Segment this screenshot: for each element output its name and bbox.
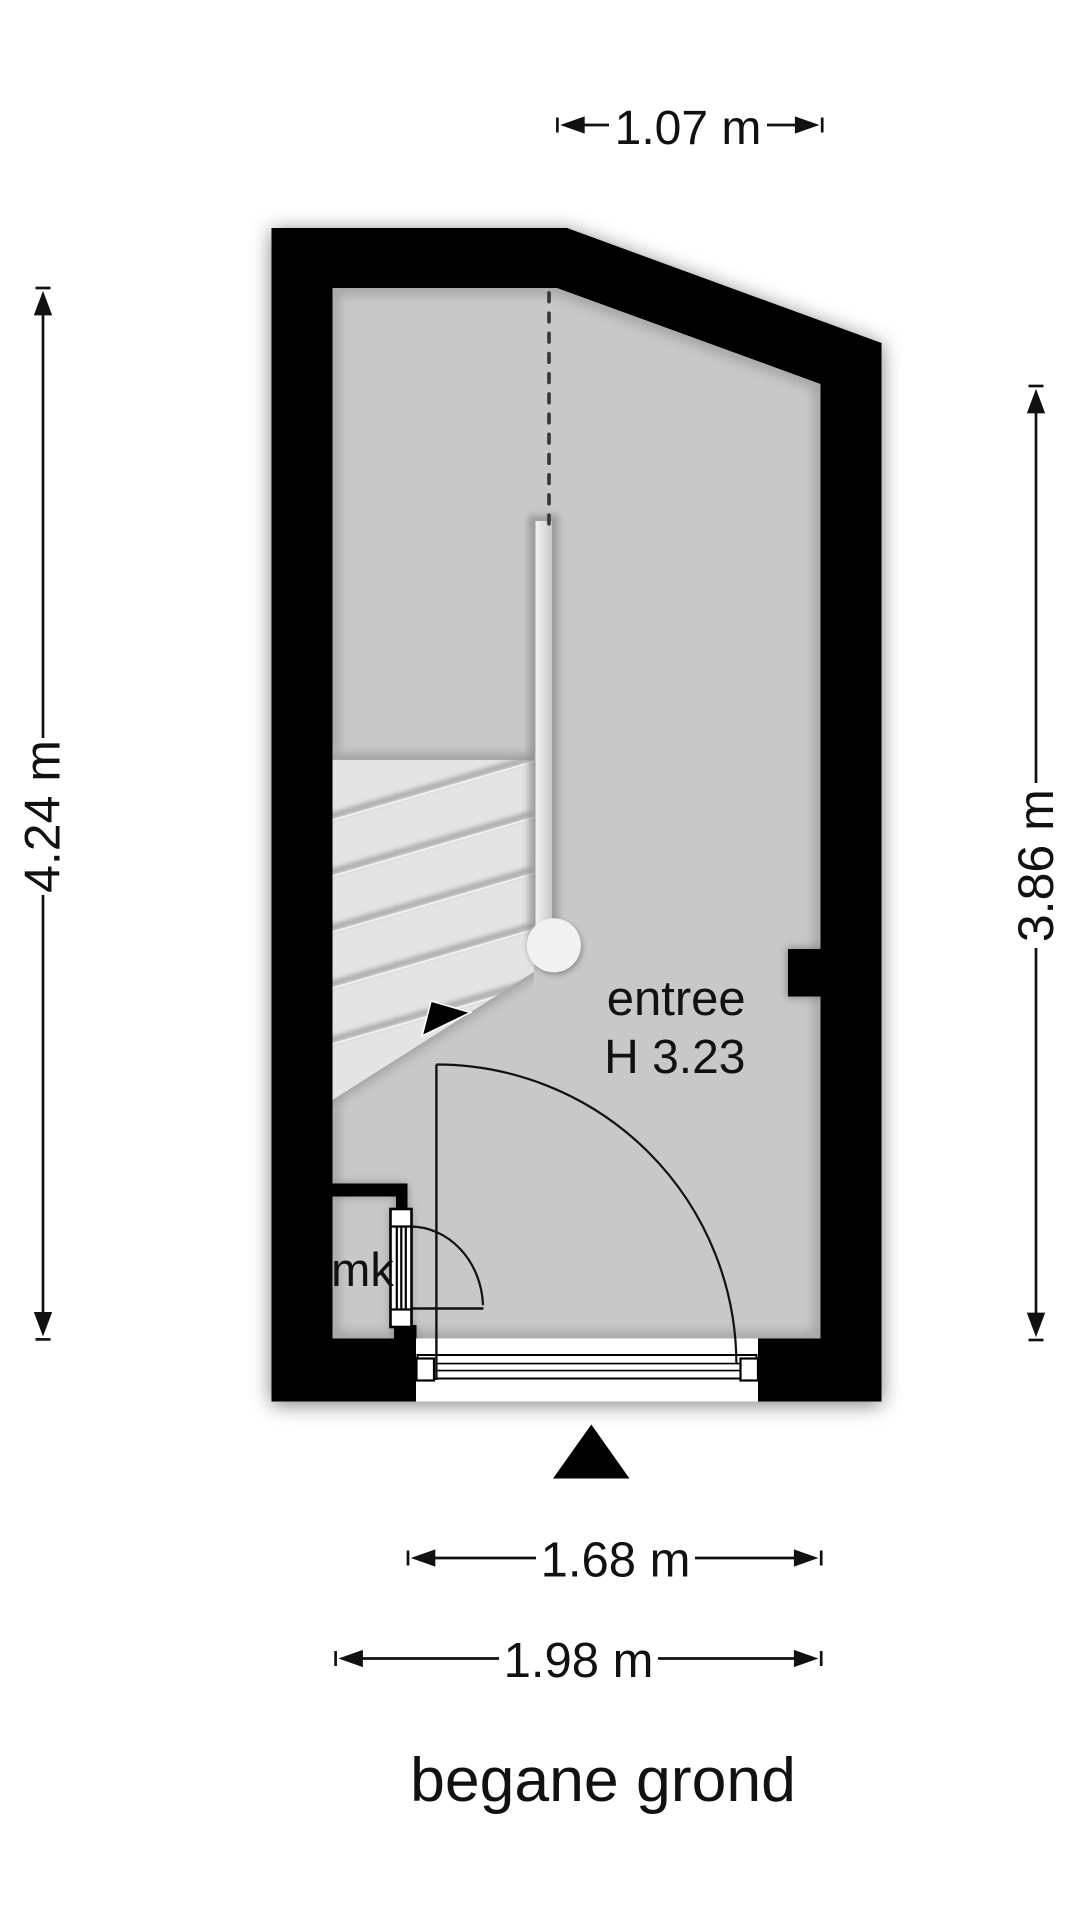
svg-text:1.98 m: 1.98 m (504, 1634, 654, 1688)
svg-text:H 3.23: H 3.23 (604, 1031, 745, 1084)
svg-text:begane grond: begane grond (410, 1745, 796, 1815)
svg-text:mk: mk (331, 1243, 394, 1296)
svg-text:3.86 m: 3.86 m (1008, 789, 1064, 942)
svg-text:1.68 m: 1.68 m (541, 1534, 691, 1588)
svg-text:4.24 m: 4.24 m (15, 740, 71, 893)
svg-text:entree: entree (607, 972, 746, 1026)
svg-text:1.07 m: 1.07 m (615, 102, 762, 155)
